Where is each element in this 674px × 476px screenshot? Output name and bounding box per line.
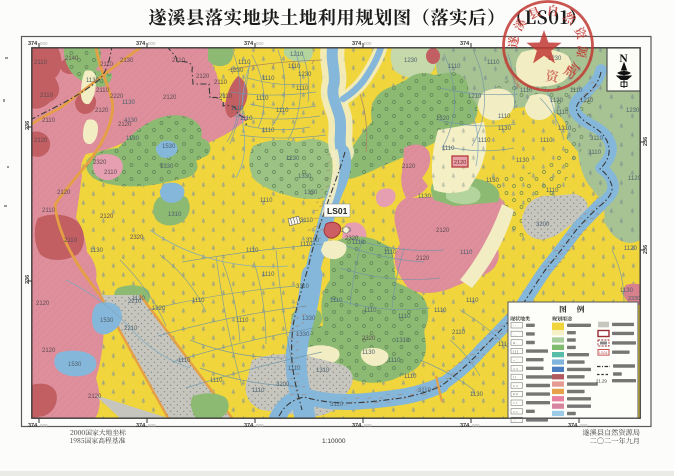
svg-text:1110: 1110	[178, 358, 191, 364]
svg-text:1110: 1110	[262, 128, 275, 134]
svg-text:1110: 1110	[398, 314, 411, 320]
svg-text:2120: 2120	[42, 348, 56, 354]
svg-text:1210: 1210	[468, 94, 482, 100]
svg-text:· ·: · ·	[513, 324, 516, 328]
svg-text:374: 374	[244, 423, 254, 429]
svg-text:1330: 1330	[298, 174, 312, 180]
svg-text:1110: 1110	[546, 188, 559, 194]
svg-text:2210: 2210	[128, 299, 142, 305]
svg-text:1110: 1110	[498, 114, 511, 120]
svg-text:1310: 1310	[316, 368, 330, 374]
svg-text:1110: 1110	[262, 272, 275, 278]
svg-text:2110: 2110	[42, 208, 56, 214]
svg-text:1130: 1130	[418, 194, 432, 200]
svg-text:1130: 1130	[86, 78, 100, 84]
svg-text:1130: 1130	[126, 136, 140, 142]
svg-text:1130: 1130	[122, 100, 136, 106]
svg-text:2120: 2120	[34, 138, 48, 144]
svg-text:2110: 2110	[214, 80, 228, 86]
svg-text:1110: 1110	[404, 374, 417, 380]
svg-text:1330: 1330	[230, 68, 244, 74]
svg-text:236: 236	[643, 245, 649, 254]
svg-text:374: 374	[28, 423, 38, 429]
svg-text:2110: 2110	[96, 88, 110, 94]
svg-text:2130: 2130	[120, 58, 134, 64]
svg-text:2210: 2210	[124, 326, 138, 332]
svg-text:1330: 1330	[296, 332, 310, 338]
svg-text:1110: 1110	[442, 146, 455, 152]
svg-text:2320: 2320	[93, 160, 107, 166]
svg-text:LS01: LS01	[327, 206, 348, 216]
svg-text:374: 374	[244, 41, 254, 47]
svg-text:1110: 1110	[520, 88, 533, 94]
svg-text:1110: 1110	[460, 250, 473, 256]
svg-text:1230: 1230	[626, 108, 640, 114]
svg-text:2110: 2110	[40, 93, 54, 99]
svg-text:2320: 2320	[362, 336, 376, 342]
svg-text:1110: 1110	[276, 108, 289, 114]
svg-text:374: 374	[568, 423, 578, 429]
svg-text:2120: 2120	[100, 214, 114, 220]
svg-text:1110: 1110	[246, 248, 259, 254]
svg-text:236: 236	[25, 121, 31, 130]
svg-text:2110: 2110	[452, 330, 466, 336]
svg-text:000: 000	[256, 41, 264, 46]
svg-text:236: 236	[25, 275, 31, 284]
svg-text:2140: 2140	[65, 56, 79, 62]
svg-text:1310: 1310	[168, 212, 182, 218]
svg-text:3110: 3110	[590, 136, 604, 142]
svg-text:000: 000	[364, 41, 372, 46]
svg-text:1110: 1110	[570, 88, 583, 94]
svg-text:1120: 1120	[624, 246, 638, 252]
svg-text:1320: 1320	[152, 306, 166, 312]
svg-text:2330: 2330	[628, 296, 640, 302]
svg-text:2120: 2120	[95, 108, 109, 114]
svg-text:1110: 1110	[210, 378, 223, 384]
svg-text:1110: 1110	[466, 298, 479, 304]
svg-text:374: 374	[460, 41, 470, 47]
svg-text:1110: 1110	[240, 116, 253, 122]
svg-text:1130: 1130	[516, 158, 530, 164]
svg-text:1110: 1110	[384, 250, 397, 256]
svg-text:1210: 1210	[580, 98, 594, 104]
svg-text:2120: 2120	[88, 394, 102, 400]
svg-text:= =: = =	[513, 384, 518, 388]
svg-text:1110: 1110	[352, 240, 365, 246]
svg-text:2120: 2120	[163, 95, 177, 101]
svg-text:2120: 2120	[454, 160, 466, 166]
svg-text:21.29: 21.29	[596, 379, 607, 384]
svg-text:3200: 3200	[536, 222, 550, 228]
svg-text:1110: 1110	[256, 96, 269, 102]
svg-text:2120: 2120	[402, 164, 416, 170]
svg-text:1110: 1110	[364, 308, 377, 314]
svg-text:1130: 1130	[470, 392, 484, 398]
svg-text:≠ ≠: ≠ ≠	[513, 393, 518, 397]
svg-text:/ /: / /	[513, 376, 516, 380]
svg-text:2110: 2110	[219, 94, 233, 100]
svg-text:000: 000	[364, 423, 372, 428]
svg-text:2110: 2110	[42, 118, 56, 124]
svg-text:⌂ ⌂: ⌂ ⌂	[513, 367, 518, 371]
svg-text:1110: 1110	[434, 308, 447, 314]
svg-text:000: 000	[40, 423, 48, 428]
svg-text:2110: 2110	[64, 238, 78, 244]
svg-text:4130: 4130	[124, 118, 138, 124]
svg-text:2120: 2120	[196, 74, 210, 80]
svg-text:1110: 1110	[388, 358, 401, 364]
svg-text:2110: 2110	[100, 62, 114, 68]
svg-text:1330: 1330	[302, 316, 316, 322]
svg-text:000: 000	[40, 41, 48, 46]
svg-text:3110: 3110	[330, 402, 344, 408]
svg-text:236: 236	[643, 137, 649, 146]
svg-text:~ :: ~ :	[513, 358, 517, 362]
svg-text:374: 374	[28, 41, 38, 47]
svg-text:1330: 1330	[304, 190, 318, 196]
svg-text:1130: 1130	[620, 288, 634, 294]
svg-text:1110: 1110	[540, 138, 553, 144]
svg-text:≈ ≈: ≈ ≈	[513, 410, 518, 414]
svg-text:000: 000	[256, 423, 264, 428]
svg-text:1230: 1230	[298, 72, 312, 78]
svg-text:2110: 2110	[172, 58, 186, 64]
svg-text:1330: 1330	[160, 164, 174, 170]
svg-text:2120: 2120	[436, 228, 450, 234]
svg-text:1110: 1110	[262, 76, 275, 82]
svg-text:000: 000	[580, 423, 588, 428]
svg-text:1110: 1110	[330, 298, 343, 304]
svg-text:000: 000	[148, 423, 156, 428]
svg-text:1110: 1110	[231, 106, 244, 112]
svg-text:374: 374	[460, 423, 470, 429]
svg-text:1110: 1110	[296, 86, 309, 92]
svg-text:3200: 3200	[276, 382, 290, 388]
svg-text:2320: 2320	[130, 235, 144, 241]
svg-text:| | |: | | |	[513, 350, 518, 354]
svg-text:1530: 1530	[100, 318, 114, 324]
svg-text:1230: 1230	[404, 58, 418, 64]
svg-text:1110: 1110	[288, 366, 301, 372]
svg-text:1310: 1310	[396, 338, 410, 344]
svg-text:1210: 1210	[290, 52, 304, 58]
svg-text:1110: 1110	[448, 64, 461, 70]
svg-text:374: 374	[352, 41, 362, 47]
svg-text:1320: 1320	[436, 116, 450, 122]
svg-text:1310: 1310	[558, 126, 572, 132]
svg-text:2110: 2110	[34, 60, 48, 66]
svg-text:1530: 1530	[162, 144, 176, 150]
svg-text:1110: 1110	[556, 110, 569, 116]
svg-text:^ ^: ^ ^	[513, 401, 518, 405]
svg-text:1110: 1110	[260, 198, 273, 204]
svg-text:374: 374	[352, 423, 362, 429]
svg-text:3110: 3110	[418, 388, 432, 394]
svg-text:1110: 1110	[238, 60, 251, 66]
svg-text:1130: 1130	[550, 98, 564, 104]
svg-text:1110: 1110	[288, 64, 301, 70]
svg-text:1130: 1130	[498, 126, 512, 132]
svg-text:2120: 2120	[36, 301, 50, 307]
svg-text:374: 374	[136, 41, 146, 47]
svg-text:3110: 3110	[588, 150, 602, 156]
svg-text:2110: 2110	[104, 170, 118, 176]
svg-text:3110: 3110	[296, 284, 310, 290]
svg-text:1110: 1110	[236, 318, 249, 324]
svg-text:1:10000: 1:10000	[322, 438, 346, 445]
svg-text:1110: 1110	[478, 138, 491, 144]
svg-text:1230: 1230	[286, 156, 300, 162]
svg-text:3110: 3110	[300, 218, 314, 224]
svg-text:2120: 2120	[57, 190, 71, 196]
svg-text:374: 374	[136, 423, 146, 429]
svg-text:1530: 1530	[68, 362, 82, 368]
svg-text:3110: 3110	[306, 238, 320, 244]
svg-text:1110: 1110	[487, 60, 500, 66]
svg-text:000: 000	[472, 423, 480, 428]
svg-text:· .: · .	[513, 333, 516, 337]
svg-text:: :: : :	[513, 419, 516, 423]
svg-text:LS01: LS01	[599, 351, 607, 355]
svg-text:o .: o .	[513, 341, 517, 345]
svg-text:1110: 1110	[252, 388, 265, 394]
svg-text:1130: 1130	[486, 178, 500, 184]
svg-text:000: 000	[148, 41, 156, 46]
svg-text:2120: 2120	[416, 256, 430, 262]
svg-text:1110: 1110	[192, 298, 205, 304]
svg-text:1130: 1130	[90, 248, 104, 254]
svg-text:1130: 1130	[362, 350, 376, 356]
